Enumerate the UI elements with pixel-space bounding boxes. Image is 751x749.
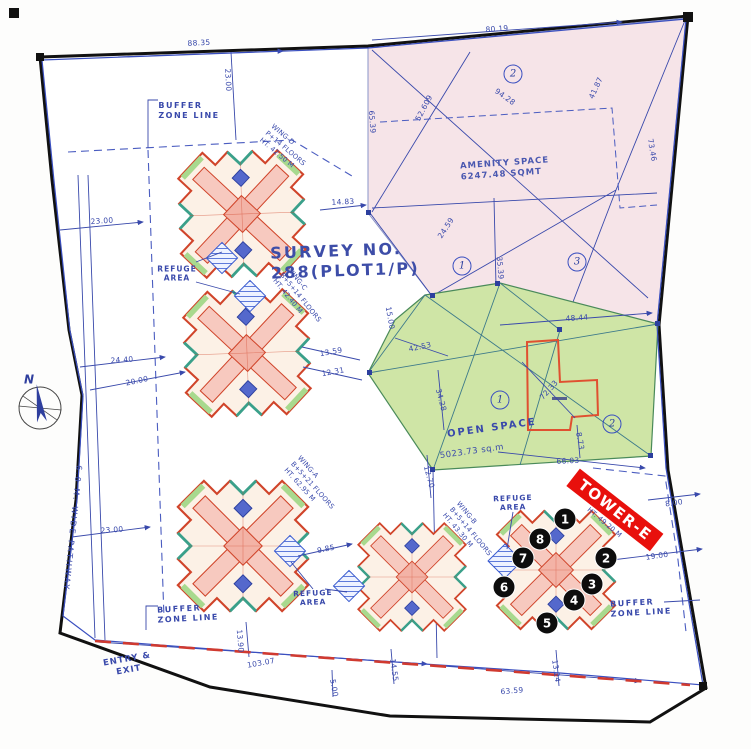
- unit-marker[interactable]: 8: [529, 528, 552, 551]
- unit-marker[interactable]: 2: [595, 547, 618, 570]
- plan-drawing: [0, 0, 751, 749]
- unit-marker[interactable]: 1: [554, 508, 577, 531]
- unit-marker[interactable]: 7: [512, 547, 535, 570]
- north-arrow: [16, 381, 64, 431]
- unit-marker[interactable]: 3: [581, 573, 604, 596]
- site-plan-canvas: SURVEY NO. 288(PLOT1/P) AMENITY SPACE 62…: [0, 0, 751, 749]
- unit-marker[interactable]: 5: [536, 612, 559, 635]
- unit-marker[interactable]: 6: [493, 576, 516, 599]
- unit-marker[interactable]: 4: [563, 589, 586, 612]
